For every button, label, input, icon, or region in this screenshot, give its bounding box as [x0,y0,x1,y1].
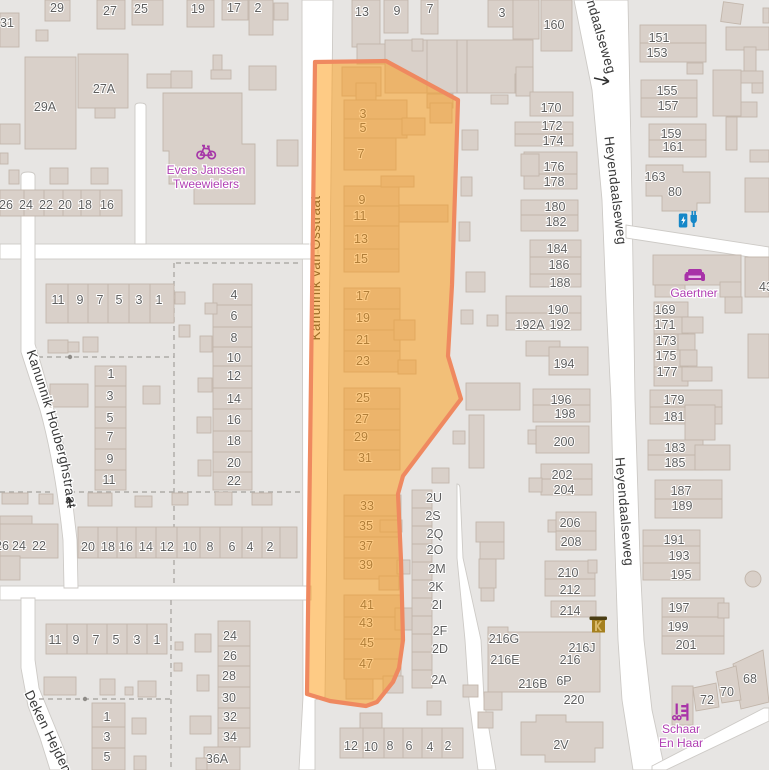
svg-text:En Haar: En Haar [659,736,703,750]
svg-text:182: 182 [546,215,567,229]
svg-text:5: 5 [113,633,120,647]
svg-text:26: 26 [223,649,237,663]
svg-text:6: 6 [231,309,238,323]
svg-text:189: 189 [672,499,693,513]
svg-text:Schaar: Schaar [662,722,700,736]
svg-text:169: 169 [655,303,676,317]
svg-text:26: 26 [0,539,9,553]
svg-text:80: 80 [668,185,682,199]
svg-text:3: 3 [499,6,506,20]
svg-text:43: 43 [759,280,769,294]
svg-text:179: 179 [664,393,685,407]
svg-text:27: 27 [103,4,117,18]
svg-text:68: 68 [743,672,757,686]
svg-text:28: 28 [222,669,236,683]
svg-text:181: 181 [664,410,685,424]
svg-text:8: 8 [387,739,394,753]
svg-text:22: 22 [227,474,241,488]
svg-text:1: 1 [108,367,115,381]
svg-text:16: 16 [100,198,114,212]
svg-text:2V: 2V [553,738,569,752]
svg-text:Tweewielers: Tweewielers [173,177,239,191]
svg-text:206: 206 [560,516,581,530]
svg-text:9: 9 [394,4,401,18]
svg-text:190: 190 [548,303,569,317]
svg-text:32: 32 [223,710,237,724]
svg-text:22: 22 [32,539,46,553]
svg-text:9: 9 [77,293,84,307]
svg-text:29A: 29A [34,100,57,114]
svg-text:2: 2 [267,540,274,554]
svg-text:14: 14 [139,540,153,554]
svg-text:175: 175 [656,349,677,363]
svg-text:2Q: 2Q [427,527,444,541]
svg-text:20: 20 [81,540,95,554]
svg-text:6: 6 [229,540,236,554]
svg-text:3: 3 [104,730,111,744]
svg-text:27A: 27A [93,82,116,96]
svg-text:199: 199 [668,620,689,634]
svg-text:195: 195 [671,568,692,582]
svg-text:2: 2 [255,1,262,15]
svg-text:180: 180 [545,200,566,214]
svg-text:174: 174 [543,134,564,148]
svg-text:8: 8 [231,331,238,345]
svg-text:192: 192 [550,318,571,332]
svg-text:20: 20 [227,456,241,470]
svg-text:26: 26 [0,198,13,212]
svg-text:13: 13 [355,5,369,19]
svg-text:210: 210 [558,566,579,580]
svg-text:3: 3 [107,389,114,403]
svg-text:216E: 216E [490,653,519,667]
svg-text:198: 198 [555,407,576,421]
svg-text:196: 196 [551,393,572,407]
svg-text:214: 214 [560,604,581,618]
svg-text:163: 163 [645,170,666,184]
svg-text:216: 216 [560,653,581,667]
svg-text:70: 70 [720,685,734,699]
svg-text:11: 11 [49,633,62,647]
svg-text:Evers Janssen: Evers Janssen [167,163,246,177]
svg-text:185: 185 [665,456,686,470]
svg-text:16: 16 [227,413,241,427]
svg-text:2: 2 [445,739,452,753]
svg-text:10: 10 [364,740,378,754]
svg-text:187: 187 [671,484,692,498]
svg-text:161: 161 [663,140,684,154]
svg-text:4: 4 [231,288,238,302]
svg-text:191: 191 [664,533,685,547]
svg-text:9: 9 [107,452,114,466]
svg-text:171: 171 [655,318,676,332]
svg-text:2K: 2K [428,580,444,594]
svg-text:22: 22 [39,198,53,212]
svg-text:1: 1 [104,710,111,724]
svg-text:173: 173 [656,334,677,348]
svg-text:7: 7 [97,293,104,307]
svg-text:17: 17 [227,1,241,15]
svg-text:204: 204 [554,483,575,497]
svg-text:72: 72 [700,693,714,707]
svg-text:176: 176 [544,160,565,174]
svg-text:18: 18 [101,540,115,554]
svg-text:170: 170 [541,101,562,115]
svg-text:2O: 2O [427,543,444,557]
svg-text:2A: 2A [431,673,447,687]
svg-text:6P: 6P [556,674,571,688]
svg-text:12: 12 [344,739,358,753]
svg-text:5: 5 [104,750,111,764]
svg-text:177: 177 [657,365,678,379]
svg-text:212: 212 [560,583,581,597]
svg-text:11: 11 [52,293,65,307]
svg-text:178: 178 [544,175,565,189]
svg-text:16: 16 [119,540,133,554]
svg-text:19: 19 [191,2,205,16]
svg-text:7: 7 [427,2,434,16]
svg-text:10: 10 [183,540,197,554]
svg-text:151: 151 [649,31,670,45]
svg-text:184: 184 [547,242,568,256]
svg-text:3: 3 [134,633,141,647]
svg-text:202: 202 [552,468,573,482]
svg-text:12: 12 [227,369,241,383]
svg-text:193: 193 [669,549,690,563]
svg-text:186: 186 [549,258,570,272]
svg-text:192A: 192A [515,318,545,332]
svg-text:4: 4 [427,740,434,754]
svg-text:155: 155 [657,84,678,98]
svg-text:18: 18 [227,434,241,448]
svg-text:188: 188 [550,276,571,290]
svg-text:3: 3 [136,293,143,307]
svg-text:1: 1 [154,633,161,647]
svg-text:6: 6 [406,739,413,753]
svg-text:183: 183 [665,441,686,455]
svg-text:25: 25 [134,2,148,16]
svg-text:216B: 216B [518,677,547,691]
svg-text:1: 1 [156,293,163,307]
svg-text:2M: 2M [428,562,445,576]
svg-text:172: 172 [542,119,563,133]
svg-text:11: 11 [103,473,116,487]
svg-text:36A: 36A [206,752,229,766]
svg-text:2S: 2S [425,509,440,523]
svg-text:34: 34 [223,730,237,744]
svg-text:31: 31 [0,16,14,30]
svg-text:159: 159 [661,127,682,141]
svg-text:2I: 2I [432,598,442,612]
svg-text:220: 220 [564,693,585,707]
svg-text:9: 9 [73,633,80,647]
svg-text:24: 24 [12,539,26,553]
svg-text:2D: 2D [432,642,448,656]
svg-text:12: 12 [160,540,174,554]
svg-text:20: 20 [58,198,72,212]
svg-text:30: 30 [222,691,236,705]
svg-text:24: 24 [19,198,33,212]
svg-text:2U: 2U [426,491,442,505]
svg-text:Gaertner: Gaertner [670,286,717,300]
svg-text:194: 194 [554,357,575,371]
svg-text:200: 200 [554,435,575,449]
svg-text:5: 5 [116,293,123,307]
svg-text:157: 157 [658,99,679,113]
svg-text:5: 5 [107,411,114,425]
svg-text:29: 29 [50,1,64,15]
svg-text:153: 153 [647,46,668,60]
svg-text:14: 14 [227,392,241,406]
svg-text:8: 8 [207,540,214,554]
svg-text:24: 24 [223,629,237,643]
svg-text:2F: 2F [433,624,448,638]
svg-text:160: 160 [544,18,565,32]
svg-text:7: 7 [107,430,114,444]
svg-text:10: 10 [227,351,241,365]
svg-text:201: 201 [676,638,697,652]
svg-text:216G: 216G [489,632,520,646]
svg-text:208: 208 [561,535,582,549]
svg-text:7: 7 [93,633,100,647]
svg-text:18: 18 [78,198,92,212]
svg-text:197: 197 [669,601,690,615]
svg-text:4: 4 [247,540,254,554]
